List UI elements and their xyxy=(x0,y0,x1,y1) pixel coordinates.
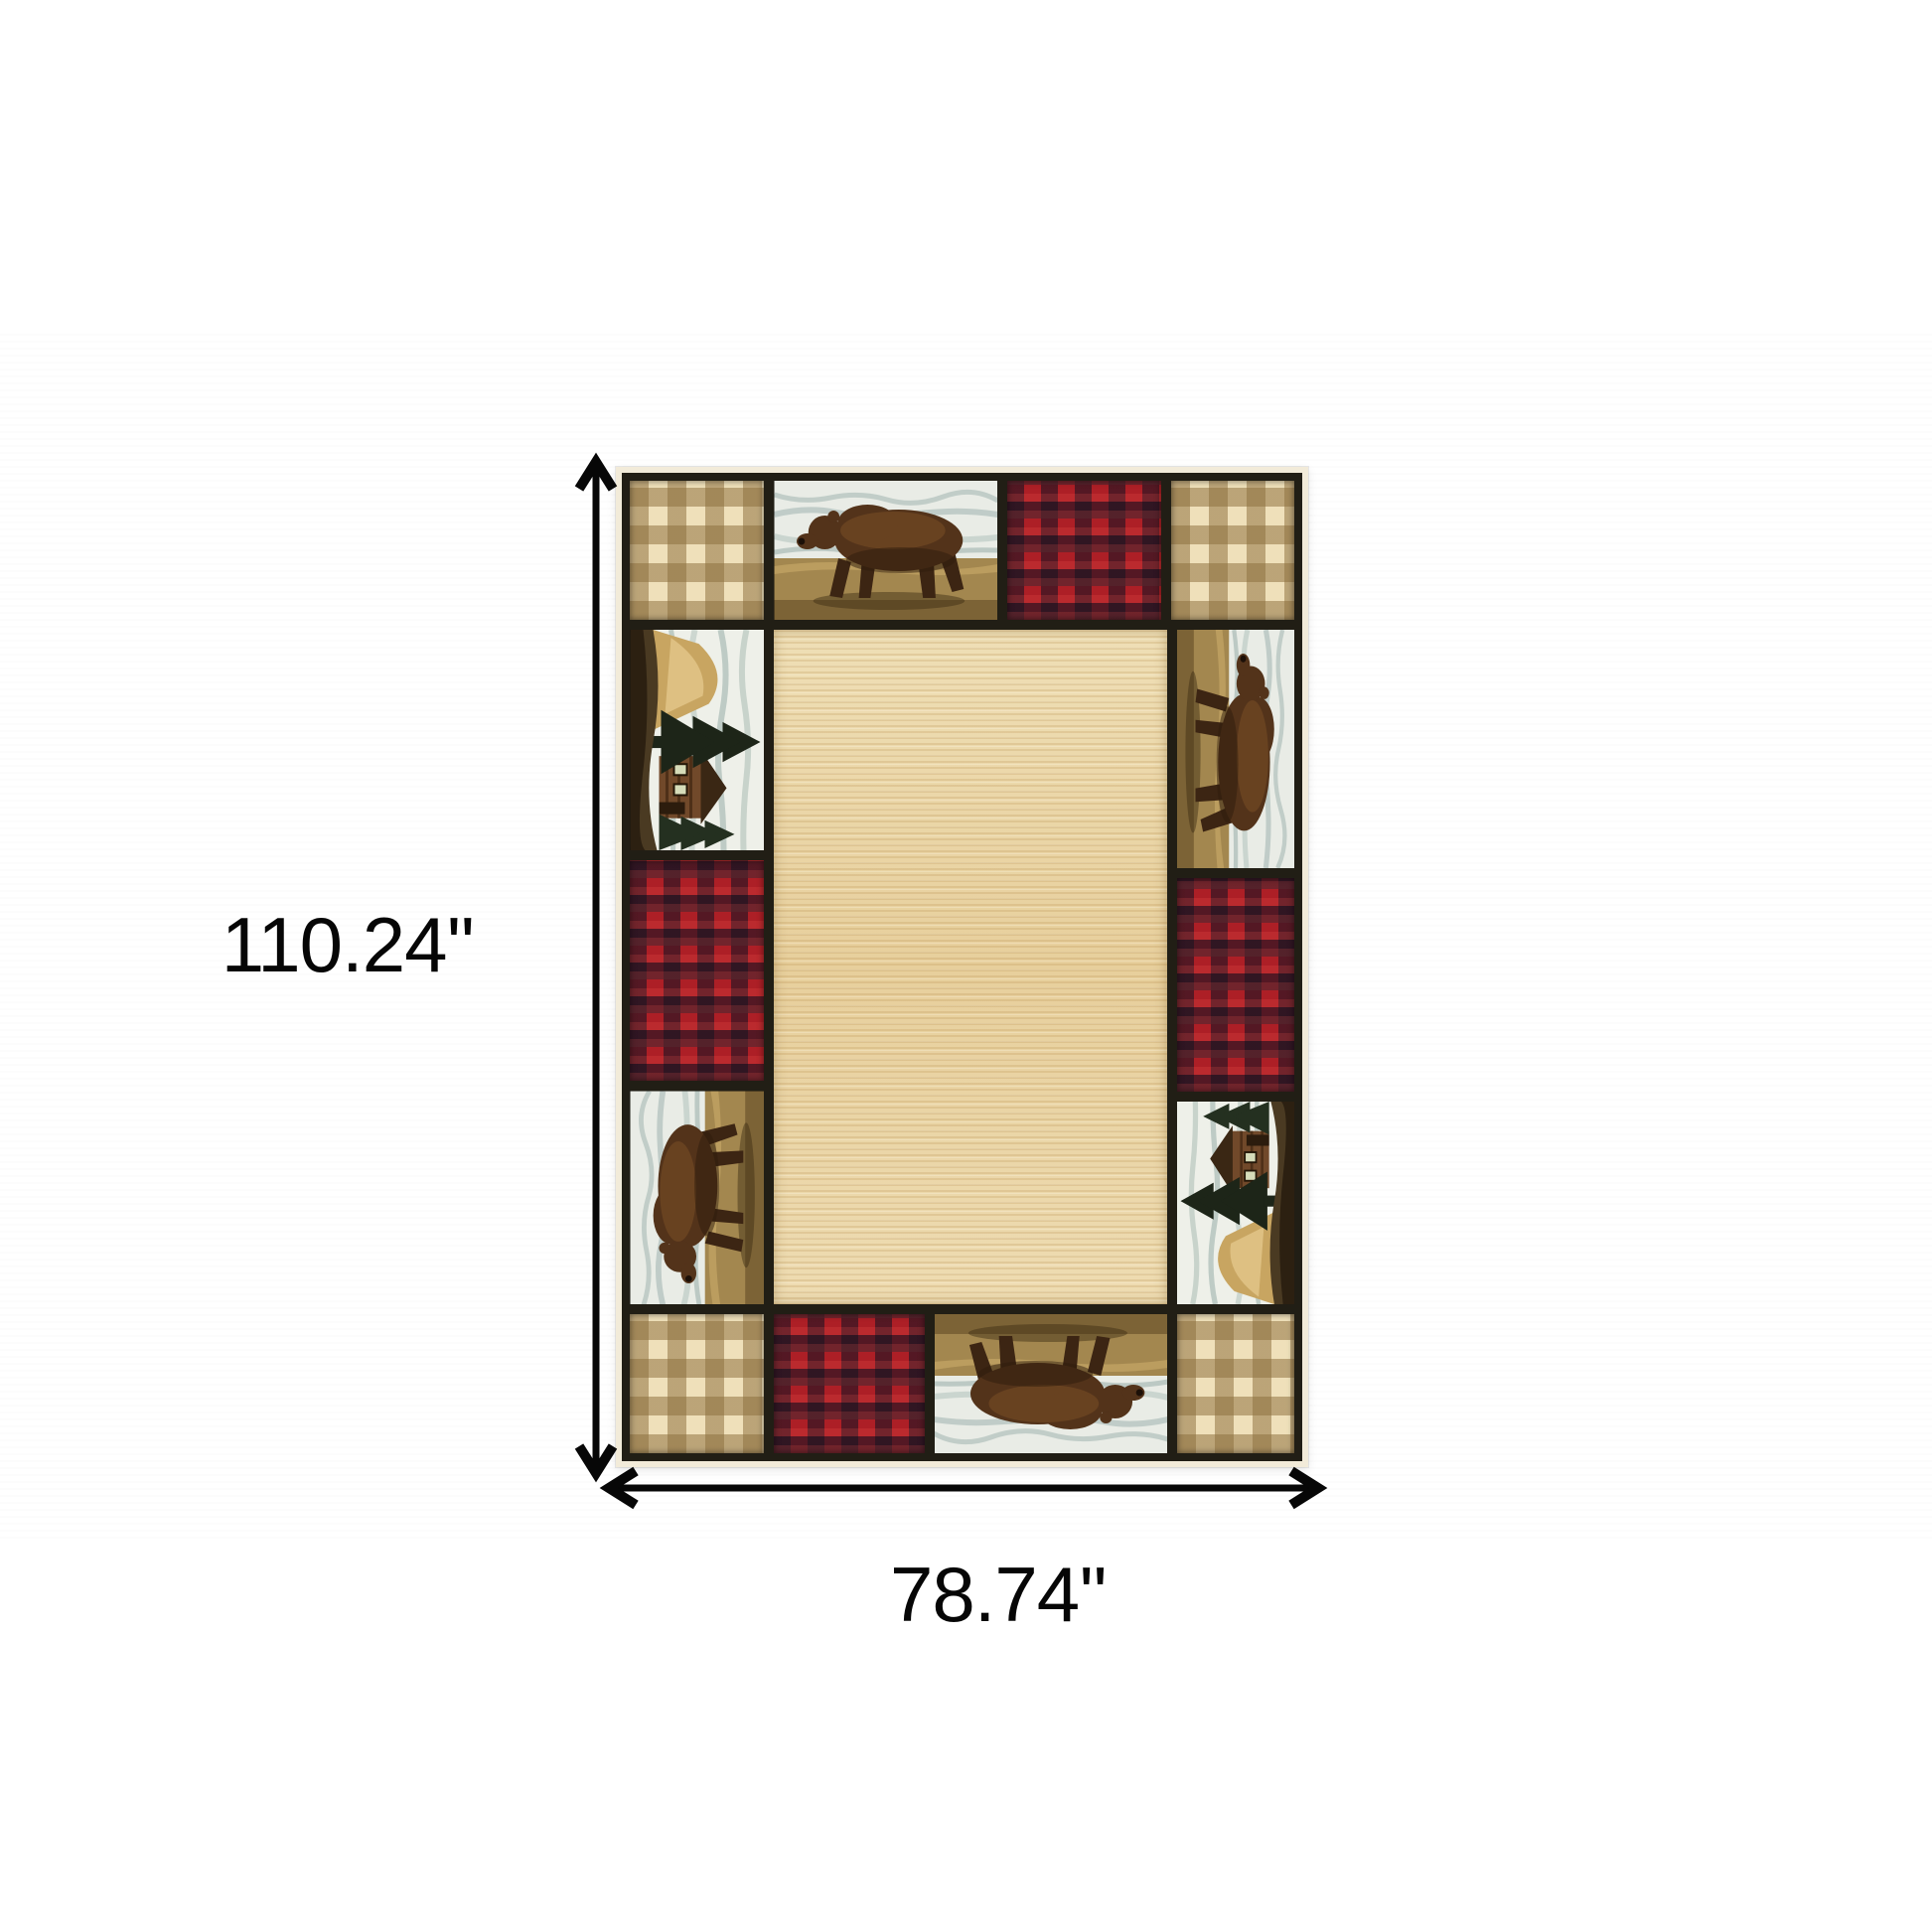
rug-border-top-row xyxy=(630,481,1294,620)
height-dimension-label: 110.24'' xyxy=(149,900,546,990)
walking-bear-icon xyxy=(935,1314,1167,1453)
walking-bear-icon xyxy=(774,481,997,620)
gingham-patch-top-left xyxy=(630,481,764,620)
width-dimension-arrow-icon xyxy=(594,1466,1333,1510)
buffalo-plaid-patch-bottom xyxy=(774,1314,925,1453)
bear-motif-left xyxy=(630,1091,764,1304)
buffalo-plaid-patch-left xyxy=(630,860,764,1081)
rug-border-bottom-row xyxy=(630,1314,1294,1453)
cabin-motif-right xyxy=(1177,1102,1294,1304)
rug-border-left-column xyxy=(630,630,764,1304)
bear-motif-right xyxy=(1177,630,1294,868)
bear-motif-top xyxy=(774,481,997,620)
buffalo-plaid-patch-right xyxy=(1177,878,1294,1092)
cabin-icon xyxy=(630,630,764,850)
rug-patchwork-border xyxy=(622,473,1302,1461)
rug-center-field xyxy=(774,630,1167,1304)
gingham-patch-top-right xyxy=(1171,481,1294,620)
rug-image xyxy=(616,467,1308,1467)
cabin-icon xyxy=(1177,1102,1294,1304)
height-dimension-arrow-icon xyxy=(574,449,618,1486)
width-dimension-label: 78.74'' xyxy=(795,1550,1202,1640)
walking-bear-icon xyxy=(630,1091,764,1304)
rug-border-right-column xyxy=(1177,630,1294,1304)
buffalo-plaid-patch-top xyxy=(1007,481,1161,620)
product-dimension-diagram: 110.24'' 78.74'' xyxy=(0,0,1932,1932)
gingham-patch-bottom-left xyxy=(630,1314,764,1453)
gingham-patch-bottom-right xyxy=(1177,1314,1294,1453)
walking-bear-icon xyxy=(1177,630,1294,868)
cabin-motif-left xyxy=(630,630,764,850)
rug-border-middle-band xyxy=(630,630,1294,1304)
bear-motif-bottom xyxy=(935,1314,1167,1453)
